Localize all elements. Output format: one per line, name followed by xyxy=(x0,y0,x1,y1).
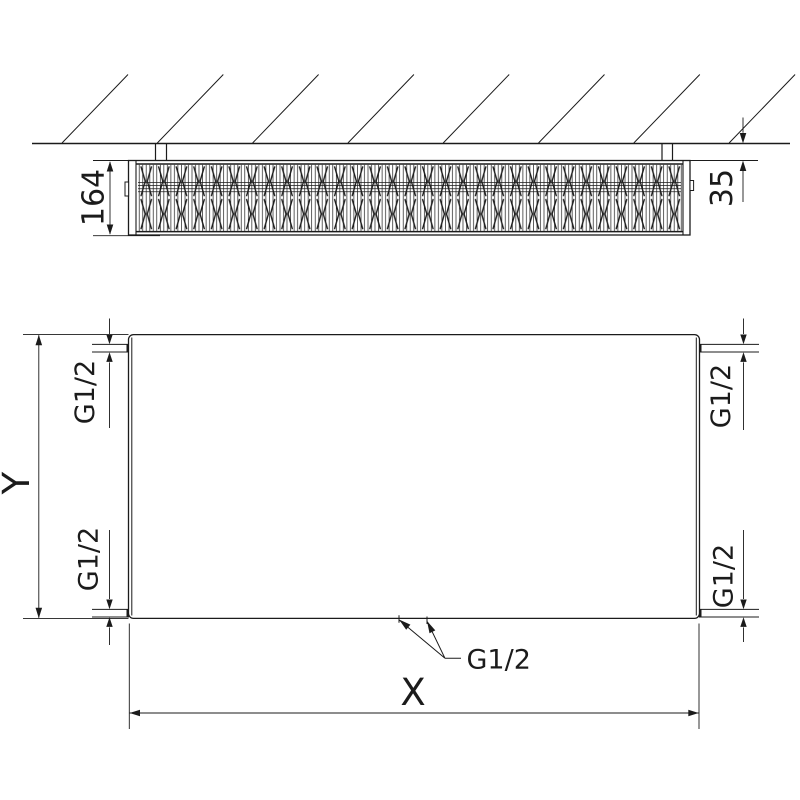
port-size-label: G1/2 xyxy=(70,360,101,424)
hub-left xyxy=(125,182,129,196)
port-size-label: G1/2 xyxy=(706,364,737,428)
depth-dimension-label: 164 xyxy=(77,169,112,226)
port-size-label: G1/2 xyxy=(467,645,531,676)
port-size-label: G1/2 xyxy=(709,544,740,608)
width-dimension-label: X xyxy=(400,671,425,714)
radiator-front-view xyxy=(92,335,759,624)
convector-fins xyxy=(138,165,683,231)
wall-gap-dimension-label: 35 xyxy=(705,169,740,207)
radiator-top-view xyxy=(125,161,694,236)
front-panel-outline xyxy=(129,335,700,619)
hub-right xyxy=(690,181,694,191)
radiator-technical-drawing: 164 35 Y X xyxy=(0,0,800,800)
height-dimension-label: Y xyxy=(0,471,38,495)
port-size-label: G1/2 xyxy=(74,527,105,591)
